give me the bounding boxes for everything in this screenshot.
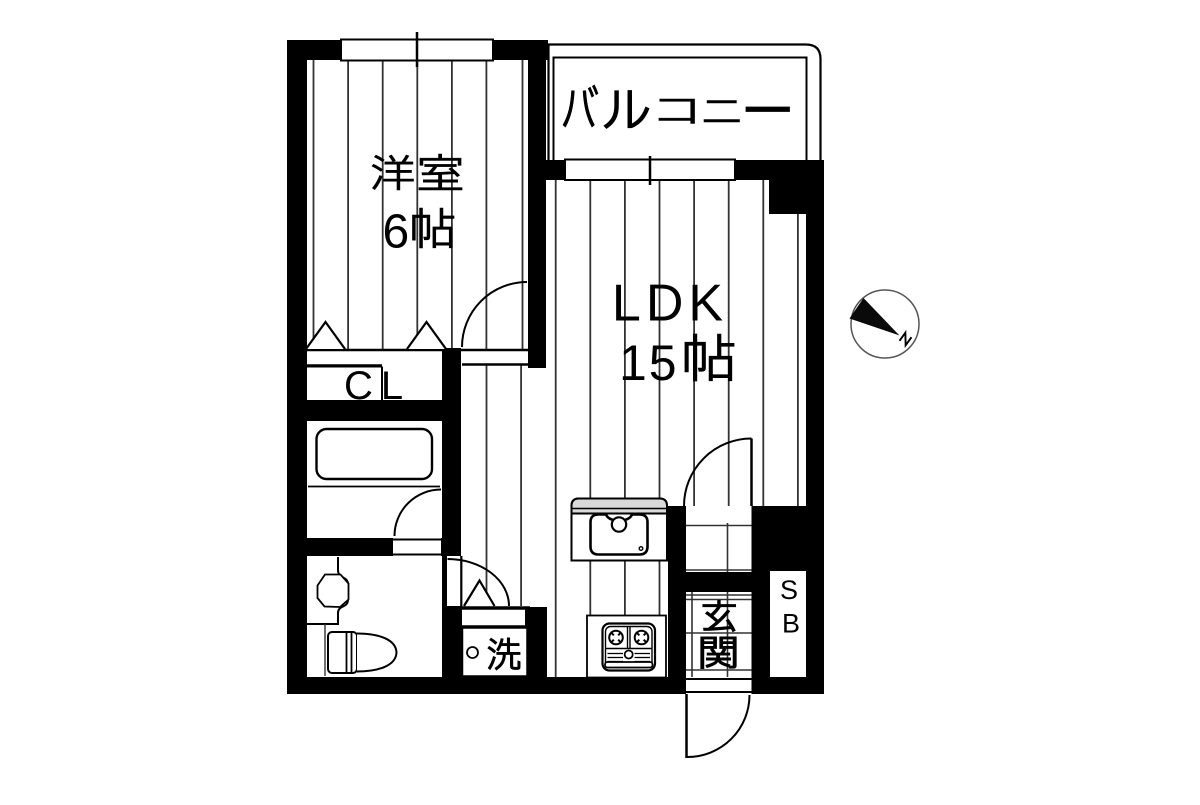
svg-text:S: S (780, 575, 798, 605)
svg-text:15: 15 (619, 335, 679, 391)
svg-text:LDK: LDK (612, 275, 728, 333)
svg-text:CL: CL (344, 364, 411, 408)
svg-text:6: 6 (383, 206, 410, 259)
svg-text:B: B (782, 609, 800, 639)
